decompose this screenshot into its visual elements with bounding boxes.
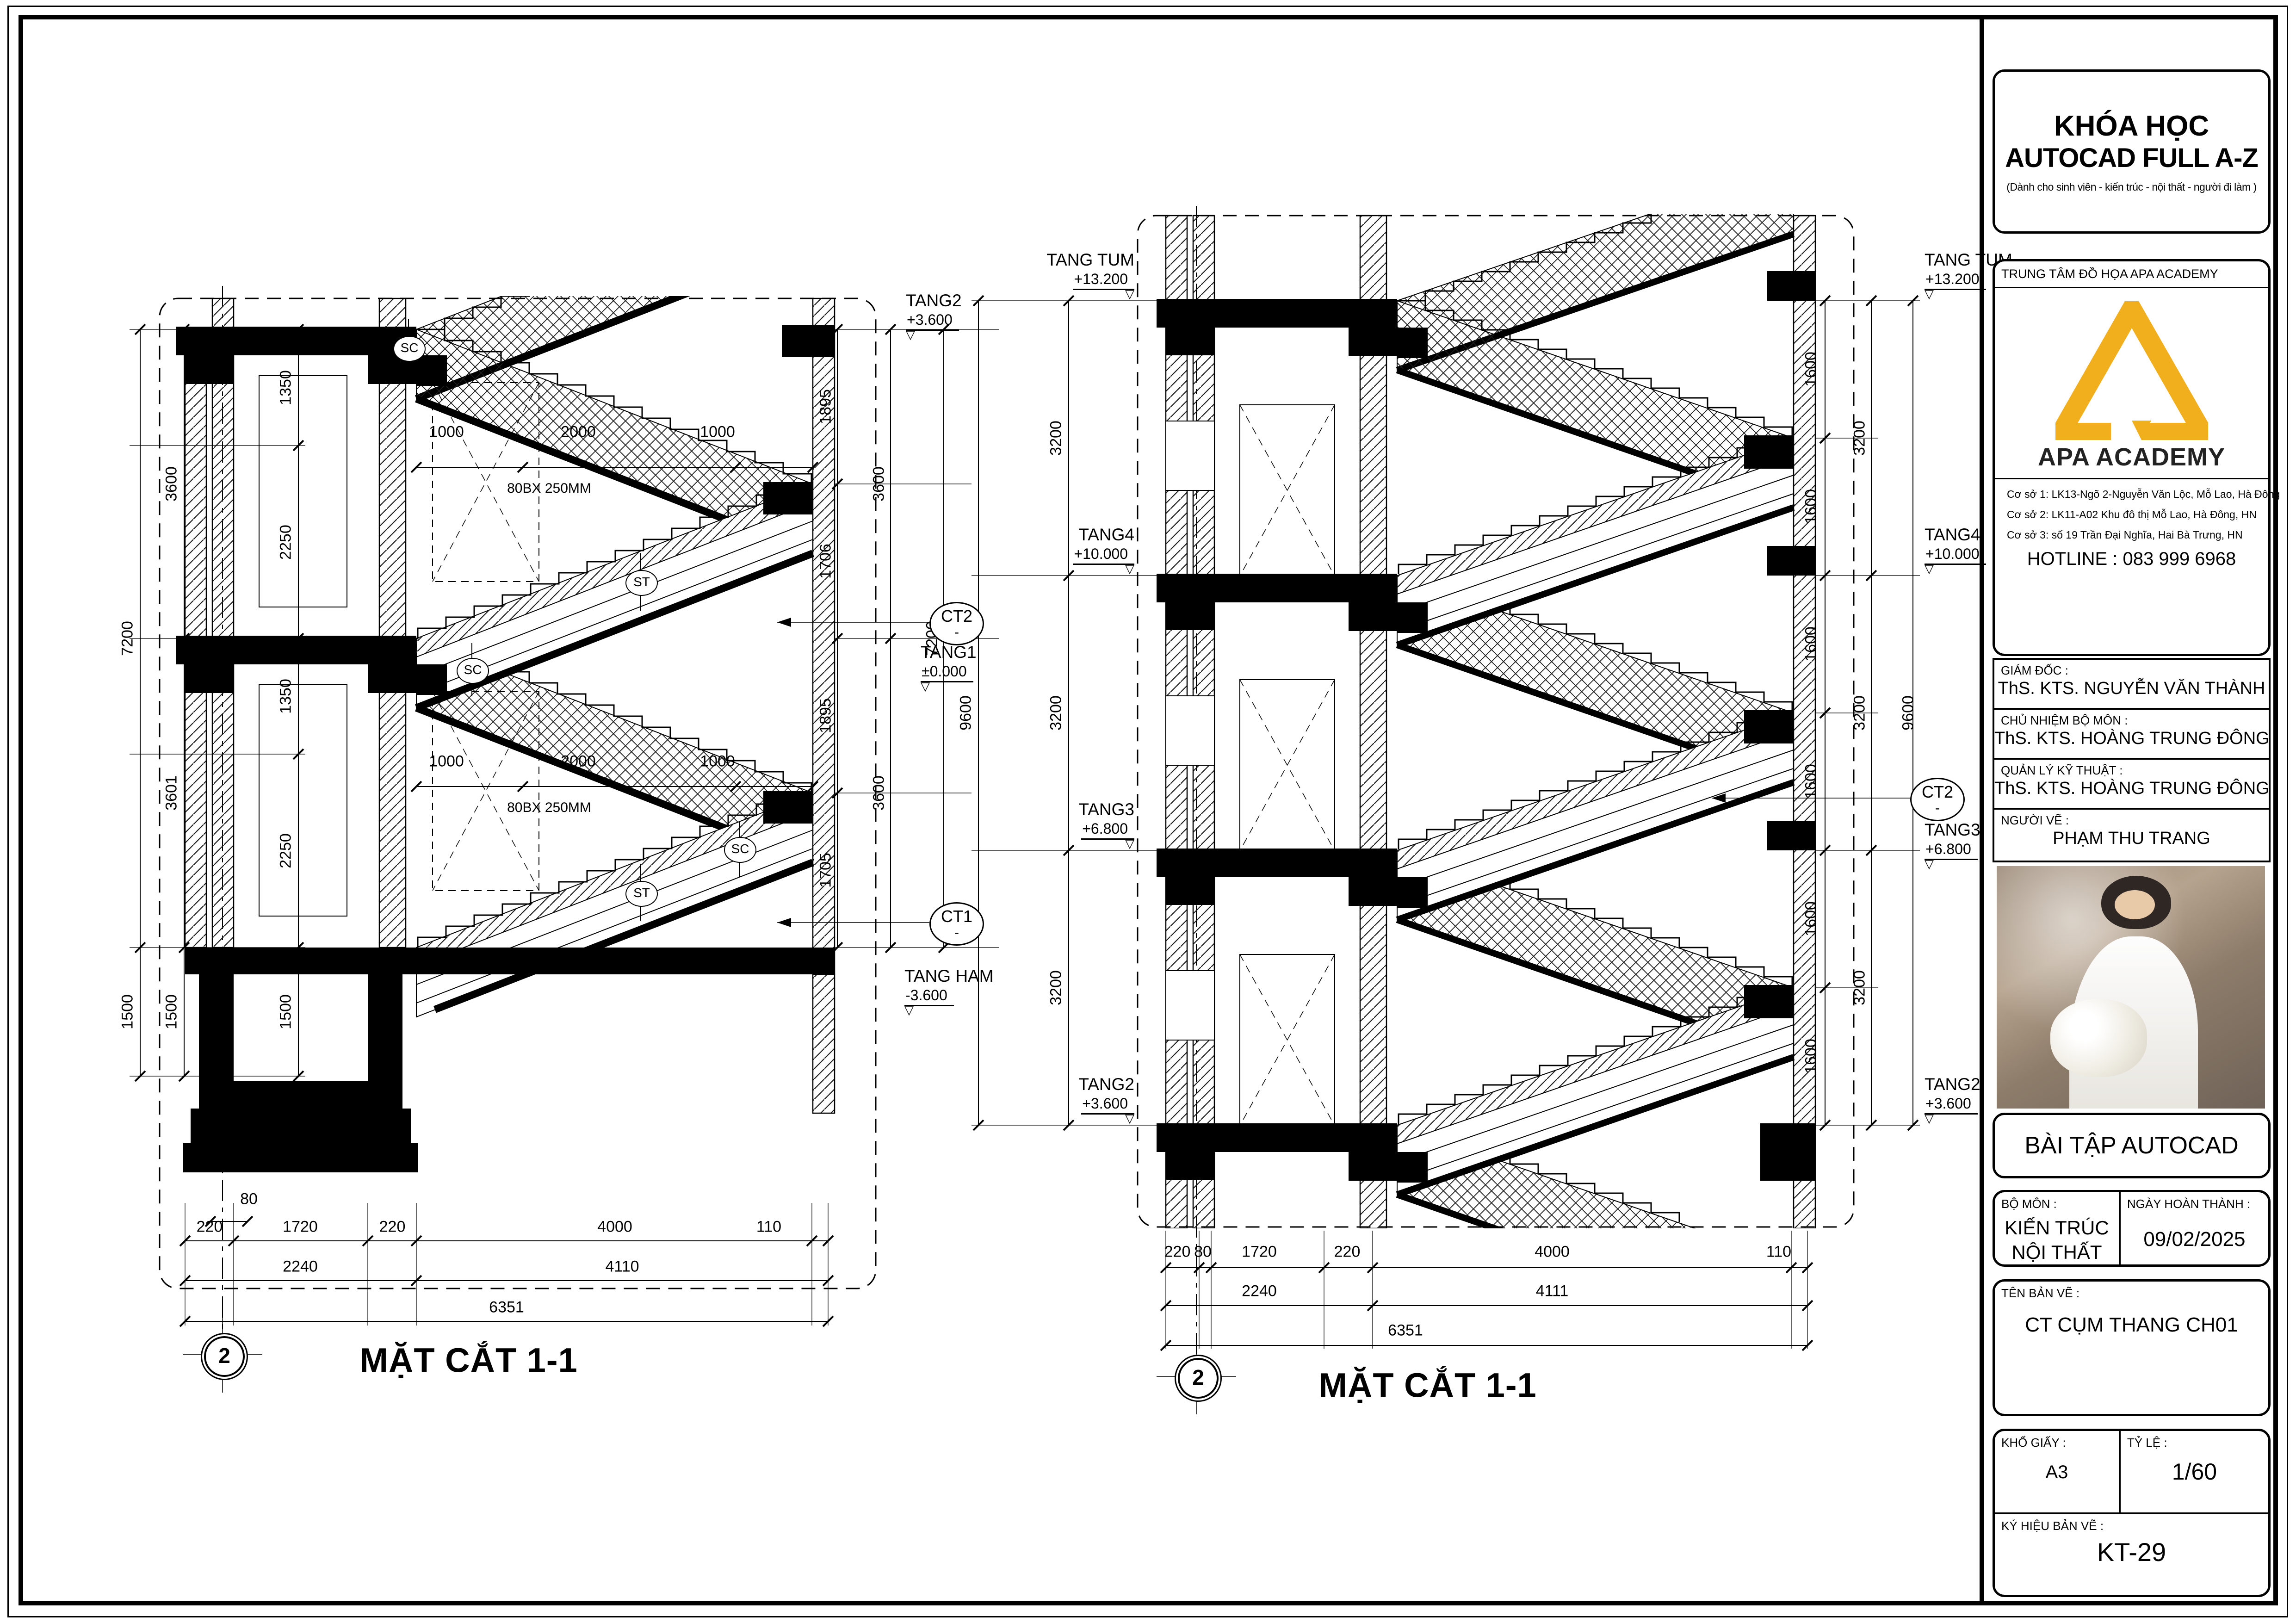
dim-label: 1895: [817, 389, 835, 424]
level-triangle-icon: ▽: [1925, 859, 1934, 869]
right-section-drawing: [972, 165, 1920, 1414]
dim-label: 1600: [1802, 764, 1820, 799]
dim-label: 1600: [1802, 489, 1820, 524]
dim-label: 2000: [561, 753, 596, 771]
level-name: TANG2: [1925, 1074, 1980, 1095]
row-quan-ly: QUẢN LÝ KỸ THUẬT : ThS. KTS. HOÀNG TRUNG…: [1993, 758, 2271, 810]
level-triangle-icon: ▽: [1925, 564, 1934, 574]
dim-label: 3200: [1047, 970, 1065, 1005]
drawing-name-box: TÊN BẢN VẼ : CT CỤM THANG CH01: [1993, 1279, 2271, 1416]
scale-value: 1/60: [2121, 1458, 2268, 1485]
axis-bubble: 2: [204, 1336, 245, 1377]
dim-label: 1895: [817, 698, 835, 733]
row-label: CHỦ NHIỆM BỘ MÔN :: [1994, 710, 2269, 728]
axis-bubble: 2: [1178, 1358, 1219, 1399]
dim-label: 1000: [429, 423, 464, 441]
ct1-bubble: CT1 -: [929, 902, 984, 946]
dim-label: 3600: [870, 775, 888, 811]
row-giam-doc: GIÁM ĐỐC : ThS. KTS. NGUYỄN VĂN THÀNH: [1993, 658, 2271, 710]
level-name: TANG3: [1925, 820, 1980, 840]
level-marker-tang4-left: TANG4 +10.000 ▽: [996, 525, 1134, 574]
dim-label: 220: [197, 1218, 223, 1236]
row-value: ThS. KTS. HOÀNG TRUNG ĐÔNG: [1994, 779, 2269, 799]
dim-label: 1000: [700, 423, 735, 441]
address-line: Cơ sở 2: LK11-A02 Khu đô thị Mỗ Lao, Hà …: [1995, 504, 2268, 525]
row-label: GIÁM ĐỐC :: [1994, 660, 2269, 678]
ct2-bubble-right: CT2 -: [1910, 778, 1965, 821]
date-value: 09/02/2025: [2121, 1228, 2268, 1251]
photo-figure: [2115, 890, 2155, 919]
level-marker-tang4-right: TANG4 +10.000 ▽: [1925, 525, 1986, 574]
dim-label: 3600: [870, 466, 888, 502]
dim-label: 9600: [957, 695, 975, 731]
dim-label: 1706: [817, 544, 835, 579]
level-name: TANG2: [906, 291, 962, 311]
dim-label: 3200: [1851, 695, 1869, 731]
exercise-label: BÀI TẬP AUTOCAD: [2024, 1132, 2238, 1159]
scale-label: TỶ LỆ :: [2121, 1431, 2268, 1450]
course-subtitle: (Dành cho sinh viên - kiến trúc - nội th…: [2006, 181, 2256, 193]
dim-label: 7200: [119, 621, 137, 656]
drawing-name-label: TÊN BẢN VẼ :: [1995, 1282, 2268, 1301]
bomon-label: BỘ MÔN :: [1995, 1192, 2119, 1211]
left-drawing-dimensions: [130, 319, 999, 1393]
ct2-bubble: CT2 -: [929, 602, 984, 645]
dim-label: 6351: [489, 1299, 524, 1317]
dim-label: 3601: [163, 775, 181, 811]
code-label: KÝ HIỆU BẢN VẼ :: [1995, 1514, 2268, 1533]
ct-id: CT1: [941, 908, 972, 925]
dim-label: 1705: [817, 853, 835, 888]
level-marker-tang3-right: TANG3 +6.800 ▽: [1925, 820, 1980, 869]
academy-logo: APA ACADEMY: [1995, 288, 2268, 471]
level-name: TANG4: [1078, 525, 1134, 545]
dim-label: 220: [379, 1218, 406, 1236]
level-marker-tang2-left: TANG2 +3.600 ▽: [996, 1074, 1134, 1123]
dim-label: 1720: [283, 1218, 318, 1236]
exercise-box: BÀI TẬP AUTOCAD: [1993, 1113, 2271, 1178]
date-label: NGÀY HOÀN THÀNH :: [2121, 1192, 2268, 1211]
bomon-value-line1: KIẾN TRÚC: [1995, 1216, 2119, 1240]
r-front-flight-s1: [1397, 438, 1794, 645]
dim-label: 3600: [163, 466, 181, 502]
sc-bubble: SC: [457, 658, 489, 684]
drawing-name-value: CT CỤM THANG CH01: [1995, 1313, 2268, 1337]
dim-label: 9600: [1900, 695, 1918, 731]
r-front-flight-s2: [1397, 713, 1794, 920]
dim-label: 1000: [700, 753, 735, 771]
dim-label: 1500: [163, 994, 181, 1029]
row-label: QUẢN LÝ KỸ THUẬT :: [1994, 760, 2269, 778]
dim-label: 1000: [429, 753, 464, 771]
dim-label: 2250: [277, 833, 295, 868]
sc-bubble: SC: [393, 336, 426, 362]
row-value: ThS. KTS. NGUYỄN VĂN THÀNH: [1994, 679, 2269, 699]
dim-label: 1500: [277, 994, 295, 1029]
level-marker-tang1: TANG1 ±0.000 ▽: [921, 642, 977, 691]
level-triangle-icon: ▽: [1125, 564, 1134, 574]
right-drawing-doors: [1240, 405, 1335, 1126]
course-title-line2: AUTOCAD FULL A-Z: [2005, 142, 2258, 173]
dim-label: 1720: [1242, 1243, 1277, 1261]
course-header-box: KHÓA HỌC AUTOCAD FULL A-Z (Dành cho sinh…: [1993, 69, 2271, 234]
dim-label: 2240: [283, 1258, 318, 1276]
dim-label: 3200: [1851, 421, 1869, 456]
level-name: TANG TUM: [1046, 250, 1134, 270]
level-name: TANG HAM: [904, 966, 994, 986]
stair-note: 80BX 250MM: [507, 481, 591, 496]
dim-label: 4110: [605, 1258, 639, 1276]
stair-note: 80BX 250MM: [507, 800, 591, 816]
apa-triangle-logo-icon: [2055, 301, 2208, 440]
academy-logo-text: APA ACADEMY: [2038, 443, 2225, 471]
row-label: NGƯỜI VẼ :: [1994, 810, 2269, 828]
dim-label: 6351: [1388, 1322, 1423, 1340]
left-section-drawing: [130, 174, 999, 1393]
r-front-flight-s3: [1397, 988, 1794, 1195]
level-marker-tang2-right: TANG2 +3.600 ▽: [1925, 1074, 1980, 1123]
ct-sub: -: [1935, 801, 1940, 815]
paper-value: A3: [1995, 1462, 2119, 1483]
dim-label: 3200: [1047, 421, 1065, 456]
academy-box: TRUNG TÂM ĐỒ HỌA APA ACADEMY APA ACADEMY…: [1993, 259, 2271, 656]
bomon-value-line2: NỘI THẤT: [1995, 1240, 2119, 1265]
level-triangle-icon: ▽: [1125, 1114, 1134, 1123]
dim-label: 4111: [1536, 1282, 1569, 1301]
dim-label: 1600: [1802, 1039, 1820, 1074]
dim-label: 110: [756, 1218, 781, 1236]
drawing-sheet: 1350 2250 1350 2250 1500 3600 3601 1500 …: [0, 0, 2296, 1623]
level-name: TANG4: [1925, 525, 1980, 545]
level-marker-tang2: TANG2 +3.600 ▽: [906, 291, 962, 340]
dim-label: 2240: [1242, 1282, 1277, 1301]
row-nguoi-ve: NGƯỜI VẼ : PHẠM THU TRANG: [1993, 808, 2271, 862]
level-name: TANG1: [921, 642, 977, 663]
dim-label: 4000: [1535, 1243, 1570, 1261]
academy-center-label: TRUNG TÂM ĐỒ HỌA APA ACADEMY: [1995, 261, 2268, 288]
level-triangle-icon: ▽: [904, 1005, 914, 1015]
dim-label: 220: [1164, 1243, 1191, 1261]
dim-label: 220: [1334, 1243, 1361, 1261]
ct-sub: -: [954, 926, 959, 940]
left-drawing-title: MẶT CẮT 1-1: [359, 1341, 577, 1380]
dim-label: 1500: [119, 994, 137, 1029]
stair-front-flight-storey2: [416, 793, 813, 1017]
address-line: Cơ sở 3: số 19 Trần Đại Nghĩa, Hai Bà Tr…: [1995, 525, 2268, 545]
level-triangle-icon: ▽: [1125, 839, 1134, 849]
level-name: TANG3: [1078, 799, 1134, 820]
dim-label: 1350: [277, 679, 295, 714]
dim-label: 3200: [1851, 970, 1869, 1005]
level-triangle-icon: ▽: [906, 330, 915, 340]
row-value: ThS. KTS. HOÀNG TRUNG ĐÔNG: [1994, 729, 2269, 749]
ct-id: CT2: [941, 608, 972, 625]
level-marker-tangham: TANG HAM -3.600 ▽: [904, 966, 994, 1015]
address-line: Cơ sở 1: LK13-Ngõ 2-Nguyễn Văn Lộc, Mỗ L…: [1995, 479, 2268, 504]
sc-bubble: SC: [724, 837, 756, 863]
course-title-line1: KHÓA HỌC: [2054, 110, 2209, 142]
dim-label: 1600: [1802, 901, 1820, 936]
dim-label: 80: [240, 1190, 258, 1208]
portrait-photo: [1997, 866, 2265, 1109]
row-chu-nhiem: CHỦ NHIỆM BỘ MÔN : ThS. KTS. HOÀNG TRUNG…: [1993, 708, 2271, 760]
dim-label: 2250: [277, 525, 295, 560]
level-triangle-icon: ▽: [921, 681, 930, 691]
dim-label: 2000: [561, 423, 596, 441]
level-triangle-icon: ▽: [1925, 1114, 1934, 1123]
st-bubble: ST: [625, 570, 658, 596]
bomon-date-box: BỘ MÔN : KIẾN TRÚC NỘI THẤT NGÀY HOÀN TH…: [1993, 1190, 2271, 1267]
photo-figure: [2050, 999, 2147, 1077]
paper-label: KHỔ GIẤY :: [1995, 1431, 2119, 1450]
code-value: KT-29: [1995, 1537, 2268, 1567]
level-triangle-icon: ▽: [1925, 289, 1934, 299]
ct-id: CT2: [1922, 784, 1953, 800]
level-marker-tang3-left: TANG3 +6.800 ▽: [996, 799, 1134, 849]
dim-label: 1600: [1802, 626, 1820, 662]
dim-label: 80: [1194, 1243, 1212, 1261]
dim-label: 110: [1766, 1243, 1791, 1261]
level-triangle-icon: ▽: [1125, 289, 1134, 299]
level-marker-tangtum-left: TANG TUM +13.200 ▽: [996, 250, 1134, 299]
st-bubble: ST: [625, 881, 658, 907]
ct-sub: -: [954, 626, 959, 639]
paper-scale-code-box: KHỔ GIẤY : A3 TỶ LỆ : 1/60 KÝ HIỆU BẢN V…: [1993, 1429, 2271, 1597]
right-drawing-title: MẶT CẮT 1-1: [1318, 1366, 1536, 1405]
level-name: TANG2: [1078, 1074, 1134, 1095]
dim-label: 3200: [1047, 695, 1065, 731]
dim-label: 1600: [1802, 352, 1820, 387]
dim-label: 1350: [277, 370, 295, 405]
dim-label: 4000: [597, 1218, 632, 1236]
hotline: HOTLINE : 083 999 6968: [1995, 549, 2268, 570]
row-value: PHẠM THU TRANG: [1994, 829, 2269, 849]
